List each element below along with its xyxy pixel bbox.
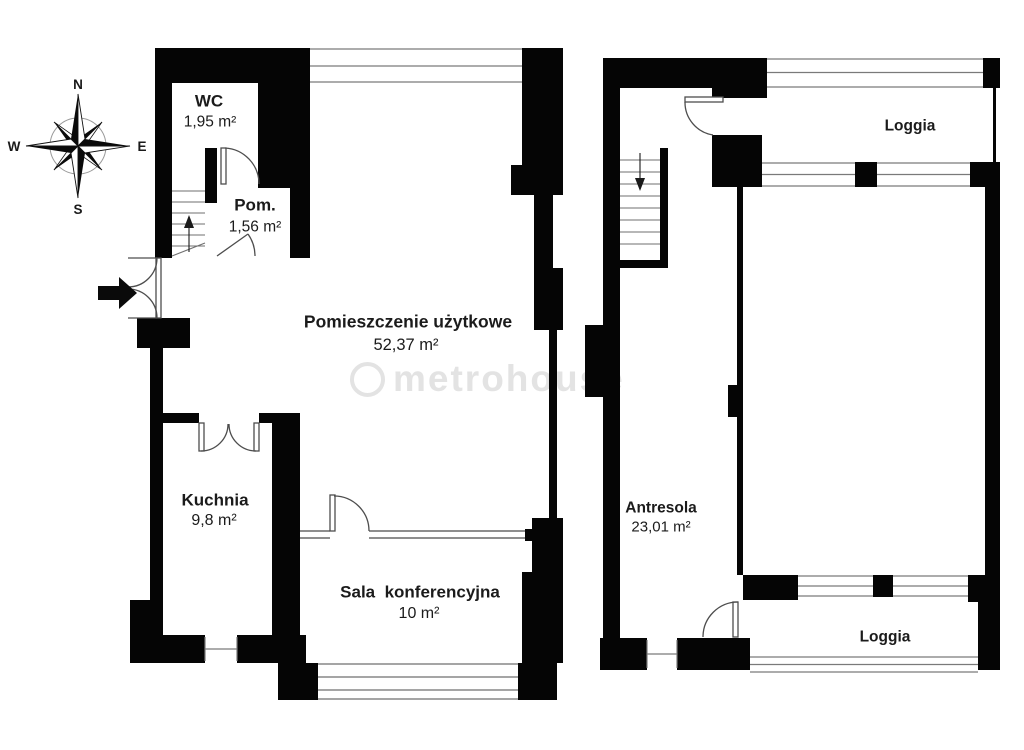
compass-east-label: E: [137, 139, 146, 154]
room-label-antresola: Antresola: [625, 500, 697, 516]
entry-arrow-icon: [98, 277, 137, 309]
entry-door-swing: [128, 258, 161, 318]
right-plan-windows: [647, 58, 983, 673]
wc-door-swing: [221, 148, 259, 184]
right-plan-staircase: [620, 153, 660, 244]
kitchen-door-swing: [199, 423, 259, 451]
lower-loggia-door-swing: [703, 602, 738, 637]
floorplan-canvas: metrohouse: [0, 0, 1024, 750]
compass-north-label: N: [73, 77, 83, 92]
upper-loggia-door-swing: [685, 97, 723, 135]
compass-west-label: W: [8, 139, 21, 154]
left-plan-staircase: [172, 191, 205, 256]
room-area-kitchen: 9,8 m²: [191, 513, 236, 529]
compass-rose-icon: N S E W: [8, 77, 147, 217]
room-label-loggia-bottom: Loggia: [860, 629, 911, 645]
room-area-wc: 1,95 m²: [184, 114, 237, 130]
compass-cardinal-points: [26, 94, 130, 198]
pom-door-swing: [217, 234, 255, 256]
room-area-antresola: 23,01 m²: [631, 520, 690, 535]
room-label-conference: Sala konferencyjna: [340, 584, 500, 601]
room-label-wc: WC: [195, 93, 223, 110]
room-area-main: 52,37 m²: [373, 337, 438, 354]
room-label-pom: Pom.: [234, 197, 276, 214]
room-area-conference: 10 m²: [399, 606, 440, 622]
room-label-loggia-top: Loggia: [885, 118, 936, 134]
glazed-partition: [300, 531, 525, 538]
room-area-pom: 1,56 m²: [229, 219, 282, 235]
compass-south-label: S: [73, 202, 82, 217]
conference-door-swing: [330, 495, 369, 531]
left-plan-windows: [205, 48, 525, 700]
room-label-kitchen: Kuchnia: [181, 492, 248, 509]
room-label-main: Pomieszczenie użytkowe: [304, 313, 512, 331]
left-plan-walls: [130, 48, 563, 700]
